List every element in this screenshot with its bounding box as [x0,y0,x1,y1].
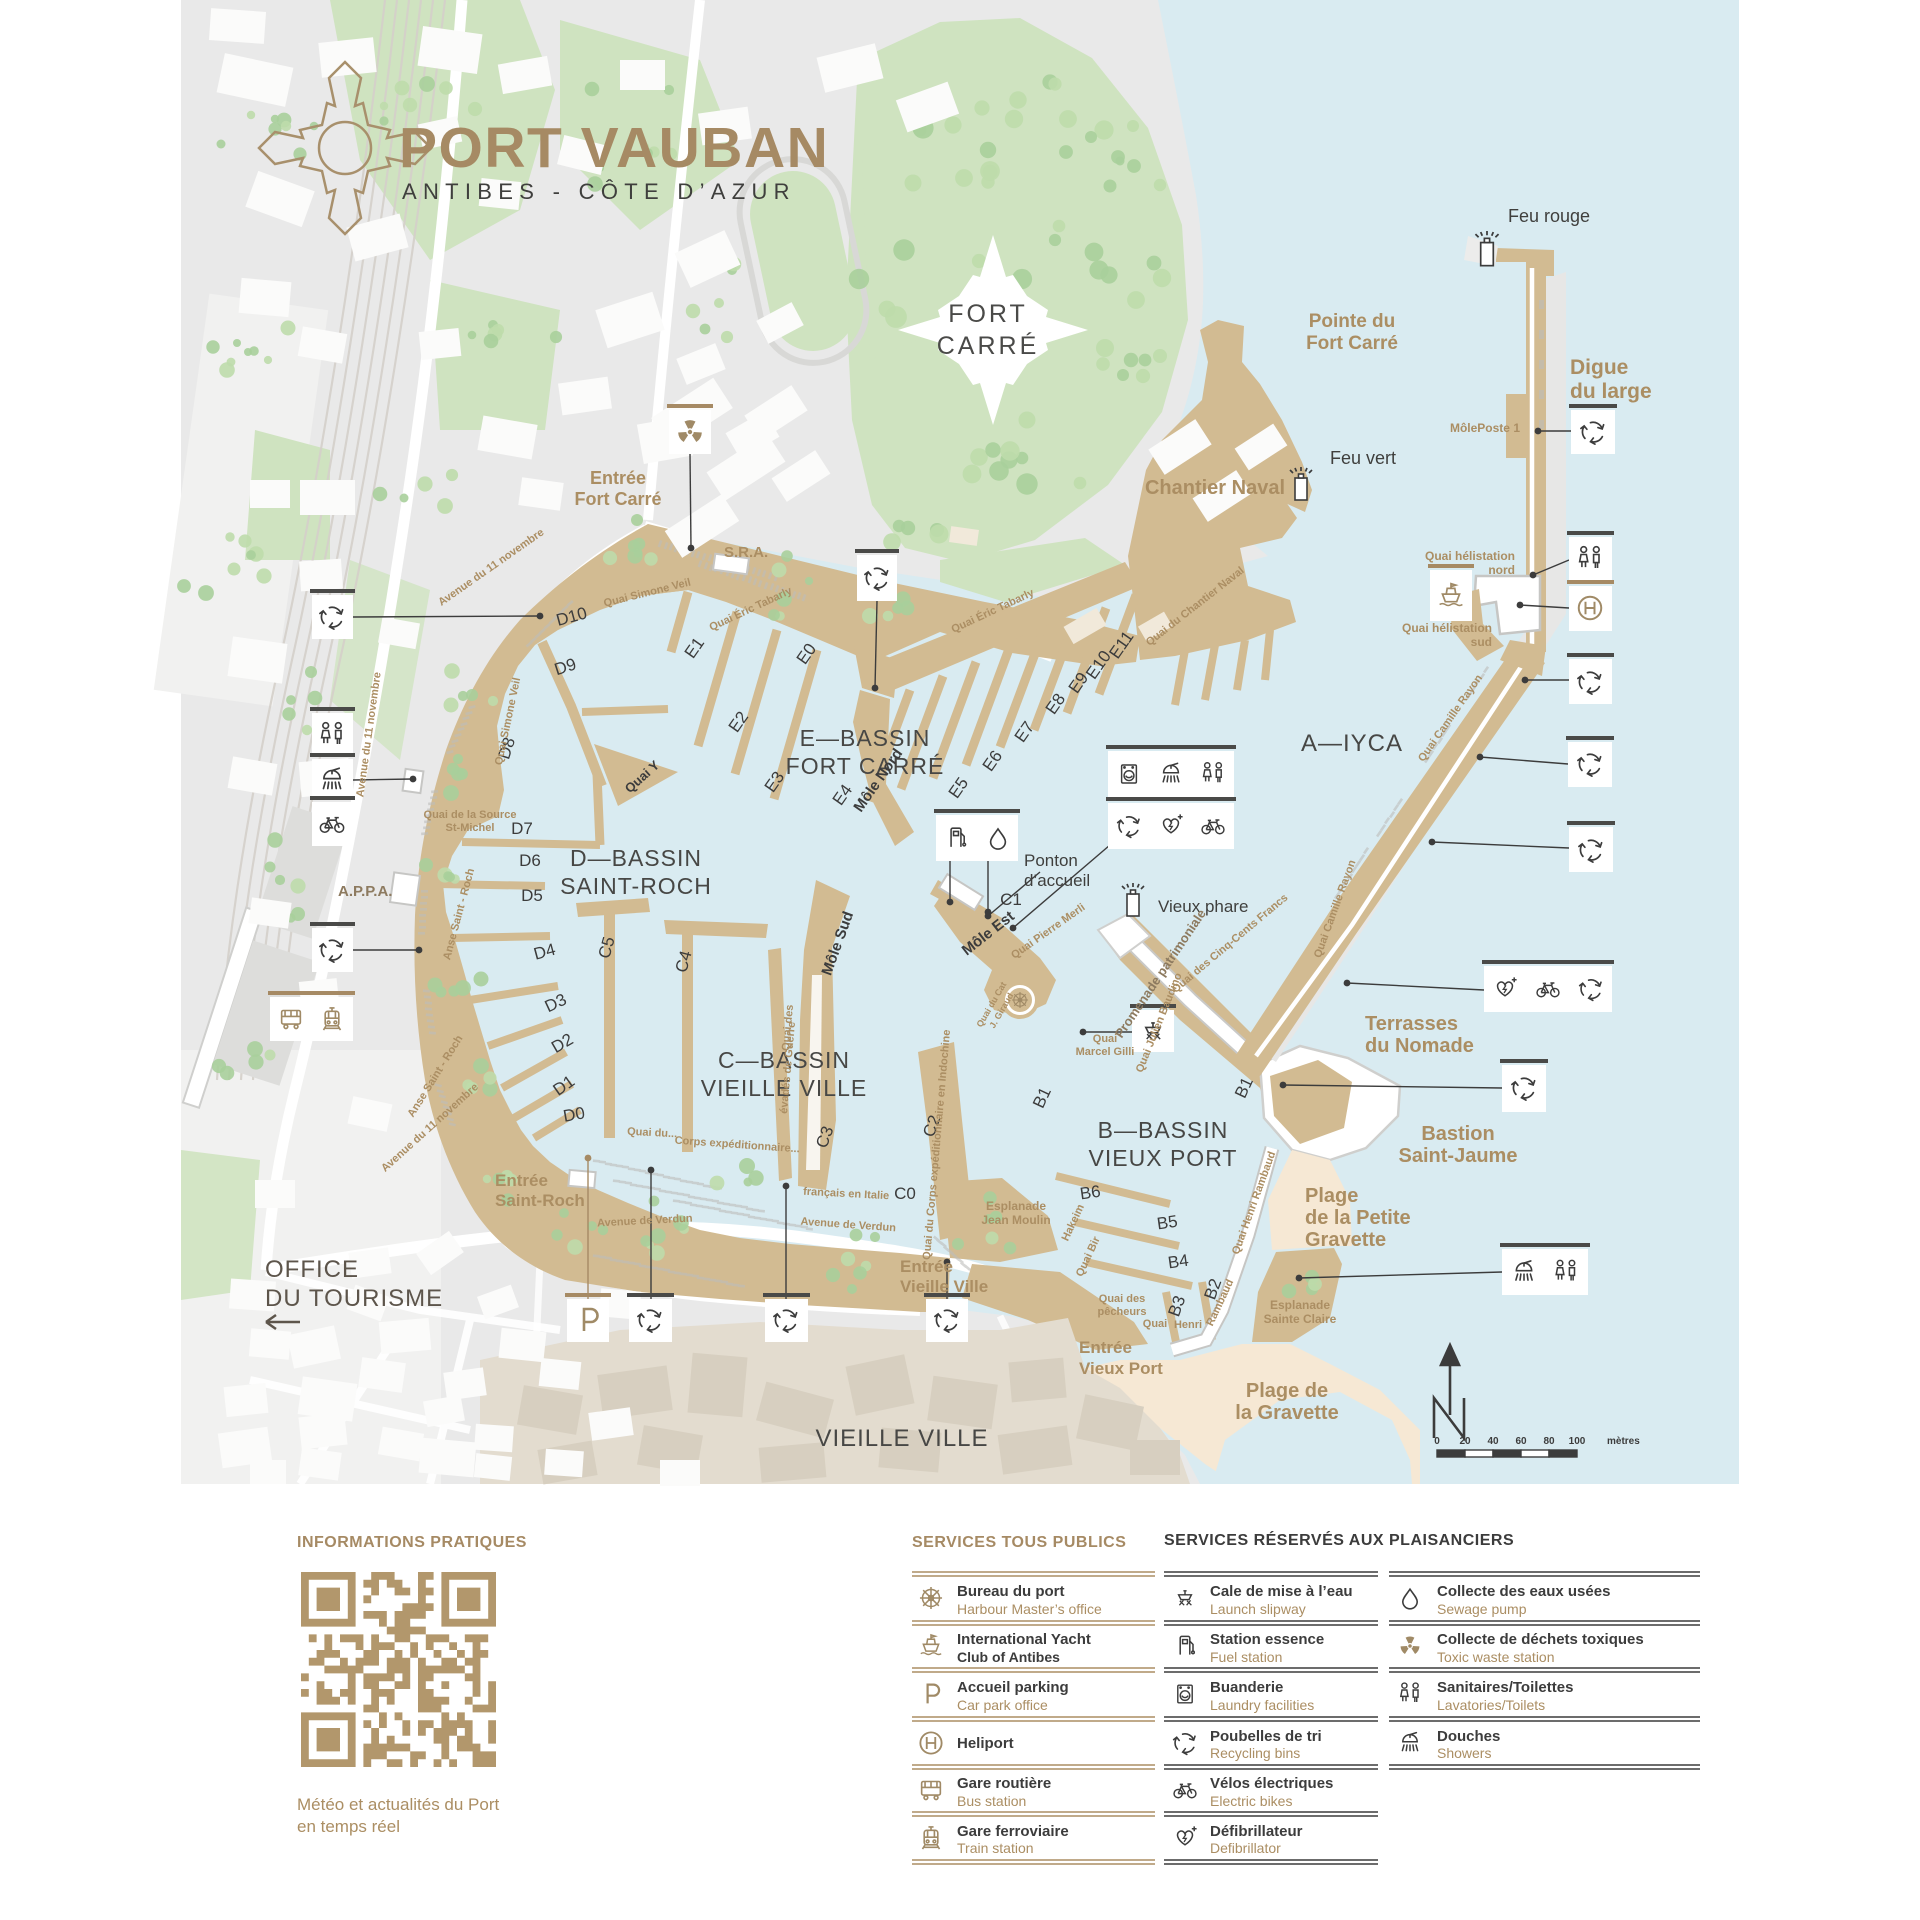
svg-text:Saint-Jaume: Saint-Jaume [1399,1145,1518,1167]
svg-text:D5: D5 [521,886,543,905]
svg-text:Sainte Claire: Sainte Claire [1264,1312,1337,1326]
svg-text:Quai: Quai [1093,1033,1117,1045]
svg-text:80: 80 [1543,1436,1555,1447]
svg-text:Gare routière: Gare routière [957,1775,1051,1792]
svg-text:Defibrillator: Defibrillator [1210,1840,1281,1856]
svg-text:Ponton: Ponton [1024,851,1078,870]
svg-text:d’accueil: d’accueil [1024,871,1090,890]
svg-text:Entrée: Entrée [1079,1338,1132,1357]
svg-text:Bus station: Bus station [957,1793,1026,1809]
svg-text:B5: B5 [1156,1212,1179,1234]
svg-text:Entrée: Entrée [495,1171,548,1190]
svg-text:Feu vert: Feu vert [1330,448,1396,468]
svg-text:de la Petite: de la Petite [1305,1207,1411,1229]
svg-text:D—BASSIN: D—BASSIN [570,845,702,871]
svg-text:du Nomade: du Nomade [1365,1035,1474,1057]
svg-text:Esplanade: Esplanade [986,1199,1046,1213]
svg-text:A—IYCA: A—IYCA [1301,730,1403,757]
svg-text:100: 100 [1569,1436,1586,1447]
svg-text:Henri: Henri [1174,1319,1202,1331]
svg-text:D7: D7 [511,819,533,838]
svg-text:Collecte des eaux usées: Collecte des eaux usées [1437,1583,1610,1600]
svg-text:Vélos électriques: Vélos électriques [1210,1775,1333,1792]
svg-text:Car park office: Car park office [957,1697,1048,1713]
svg-text:SERVICES TOUS PUBLICS: SERVICES TOUS PUBLICS [912,1534,1126,1551]
svg-text:Club of Antibes: Club of Antibes [957,1649,1060,1665]
svg-text:B—BASSIN: B—BASSIN [1098,1117,1229,1143]
svg-text:Feu rouge: Feu rouge [1508,206,1590,226]
svg-text:nord: nord [1488,563,1515,577]
svg-text:D0: D0 [562,1103,587,1125]
svg-text:Collecte de déchets toxiques: Collecte de déchets toxiques [1437,1631,1644,1648]
svg-text:Jean Moulin: Jean Moulin [981,1213,1050,1227]
svg-text:Lavatories/Toilets: Lavatories/Toilets [1437,1697,1545,1713]
svg-text:Poubelles de tri: Poubelles de tri [1210,1728,1322,1745]
svg-text:Chantier Naval: Chantier Naval [1145,477,1285,499]
svg-text:du large: du large [1570,380,1652,403]
svg-text:MôlePoste 1: MôlePoste 1 [1450,421,1520,435]
svg-text:Laundry facilities: Laundry facilities [1210,1697,1314,1713]
svg-text:Pointe du: Pointe du [1309,311,1396,332]
svg-text:Quai hélistation: Quai hélistation [1402,621,1492,635]
svg-text:Quai: Quai [1143,1318,1167,1330]
svg-text:Train station: Train station [957,1840,1034,1856]
svg-text:C1: C1 [1000,890,1022,909]
svg-text:Cale de mise à l’eau: Cale de mise à l’eau [1210,1583,1353,1600]
svg-text:Défibrillateur: Défibrillateur [1210,1823,1303,1840]
svg-text:Recycling bins: Recycling bins [1210,1745,1300,1761]
svg-text:Launch slipway: Launch slipway [1210,1601,1306,1617]
svg-text:A.P.P.A.: A.P.P.A. [338,883,392,900]
svg-text:60: 60 [1515,1436,1527,1447]
svg-text:VIEILLE VILLE: VIEILLE VILLE [815,1425,988,1452]
svg-text:Marcel Gilli: Marcel Gilli [1076,1046,1135,1058]
svg-text:Buanderie: Buanderie [1210,1679,1283,1696]
svg-text:Terrasses: Terrasses [1365,1013,1458,1035]
svg-text:Electric bikes: Electric bikes [1210,1793,1292,1809]
svg-text:International Yacht: International Yacht [957,1631,1091,1648]
svg-text:E—BASSIN: E—BASSIN [800,725,931,751]
svg-text:pêcheurs: pêcheurs [1098,1306,1147,1318]
svg-text:OFFICE: OFFICE [265,1256,359,1283]
svg-text:Bureau du port: Bureau du port [957,1583,1065,1600]
svg-text:St-Michel: St-Michel [446,822,495,834]
svg-text:Toxic waste station: Toxic waste station [1437,1649,1555,1665]
svg-text:FORT CARRÉ: FORT CARRÉ [786,753,945,779]
svg-text:SERVICES RÉSERVÉS AUX PLAISANC: SERVICES RÉSERVÉS AUX PLAISANCIERS [1164,1530,1514,1549]
svg-text:Saint-Roch: Saint-Roch [495,1191,585,1210]
svg-text:Entrée: Entrée [590,468,646,488]
svg-text:DU TOURISME: DU TOURISME [265,1285,443,1312]
svg-text:Fuel station: Fuel station [1210,1649,1282,1665]
svg-text:CARRÉ: CARRÉ [937,331,1040,360]
svg-text:Fort Carré: Fort Carré [574,489,661,509]
svg-text:Vieux Port: Vieux Port [1079,1359,1163,1378]
svg-text:mètres: mètres [1607,1436,1640,1447]
svg-text:0: 0 [1434,1436,1440,1447]
svg-text:en temps réel: en temps réel [297,1817,400,1836]
svg-text:Douches: Douches [1437,1728,1500,1745]
svg-text:Gare ferroviaire: Gare ferroviaire [957,1823,1069,1840]
svg-text:Plage: Plage [1305,1185,1358,1207]
svg-text:Esplanade: Esplanade [1270,1298,1330,1312]
svg-text:SAINT-ROCH: SAINT-ROCH [560,873,712,899]
svg-text:Quai hélistation: Quai hélistation [1425,549,1515,563]
svg-text:Sanitaires/Toilettes: Sanitaires/Toilettes [1437,1679,1573,1696]
svg-text:B4: B4 [1167,1251,1190,1273]
svg-text:Vieille Ville: Vieille Ville [900,1277,988,1296]
svg-text:40: 40 [1487,1436,1499,1447]
svg-text:Digue: Digue [1570,356,1628,379]
svg-text:Station essence: Station essence [1210,1631,1324,1648]
svg-text:Météo et actualités du Port: Météo et actualités du Port [297,1795,500,1814]
svg-text:C0: C0 [894,1184,916,1203]
svg-text:ANTIBES - CÔTE D’AZUR: ANTIBES - CÔTE D’AZUR [402,179,796,204]
svg-text:Sewage pump: Sewage pump [1437,1601,1527,1617]
svg-text:Accueil parking: Accueil parking [957,1679,1069,1696]
svg-text:Showers: Showers [1437,1745,1491,1761]
svg-text:B6: B6 [1079,1182,1102,1204]
svg-text:VIEUX PORT: VIEUX PORT [1089,1145,1238,1171]
svg-text:FORT: FORT [948,300,1028,328]
svg-text:Heliport: Heliport [957,1735,1014,1752]
svg-text:la Gravette: la Gravette [1235,1402,1338,1424]
svg-text:sud: sud [1471,635,1492,649]
svg-text:PORT VAUBAN: PORT VAUBAN [399,116,829,180]
svg-text:Harbour Master’s office: Harbour Master’s office [957,1601,1102,1617]
svg-text:Plage de: Plage de [1246,1380,1328,1402]
svg-text:S.R.A.: S.R.A. [724,544,768,561]
svg-text:Bastion: Bastion [1421,1123,1494,1145]
svg-text:Quai de la Source: Quai de la Source [424,809,517,821]
svg-text:Quai des: Quai des [1099,1293,1145,1305]
svg-text:INFORMATIONS PRATIQUES: INFORMATIONS PRATIQUES [297,1534,527,1551]
svg-text:20: 20 [1459,1436,1471,1447]
svg-text:Fort Carré: Fort Carré [1306,333,1398,354]
svg-text:Gravette: Gravette [1305,1229,1386,1251]
svg-text:D6: D6 [519,851,541,870]
